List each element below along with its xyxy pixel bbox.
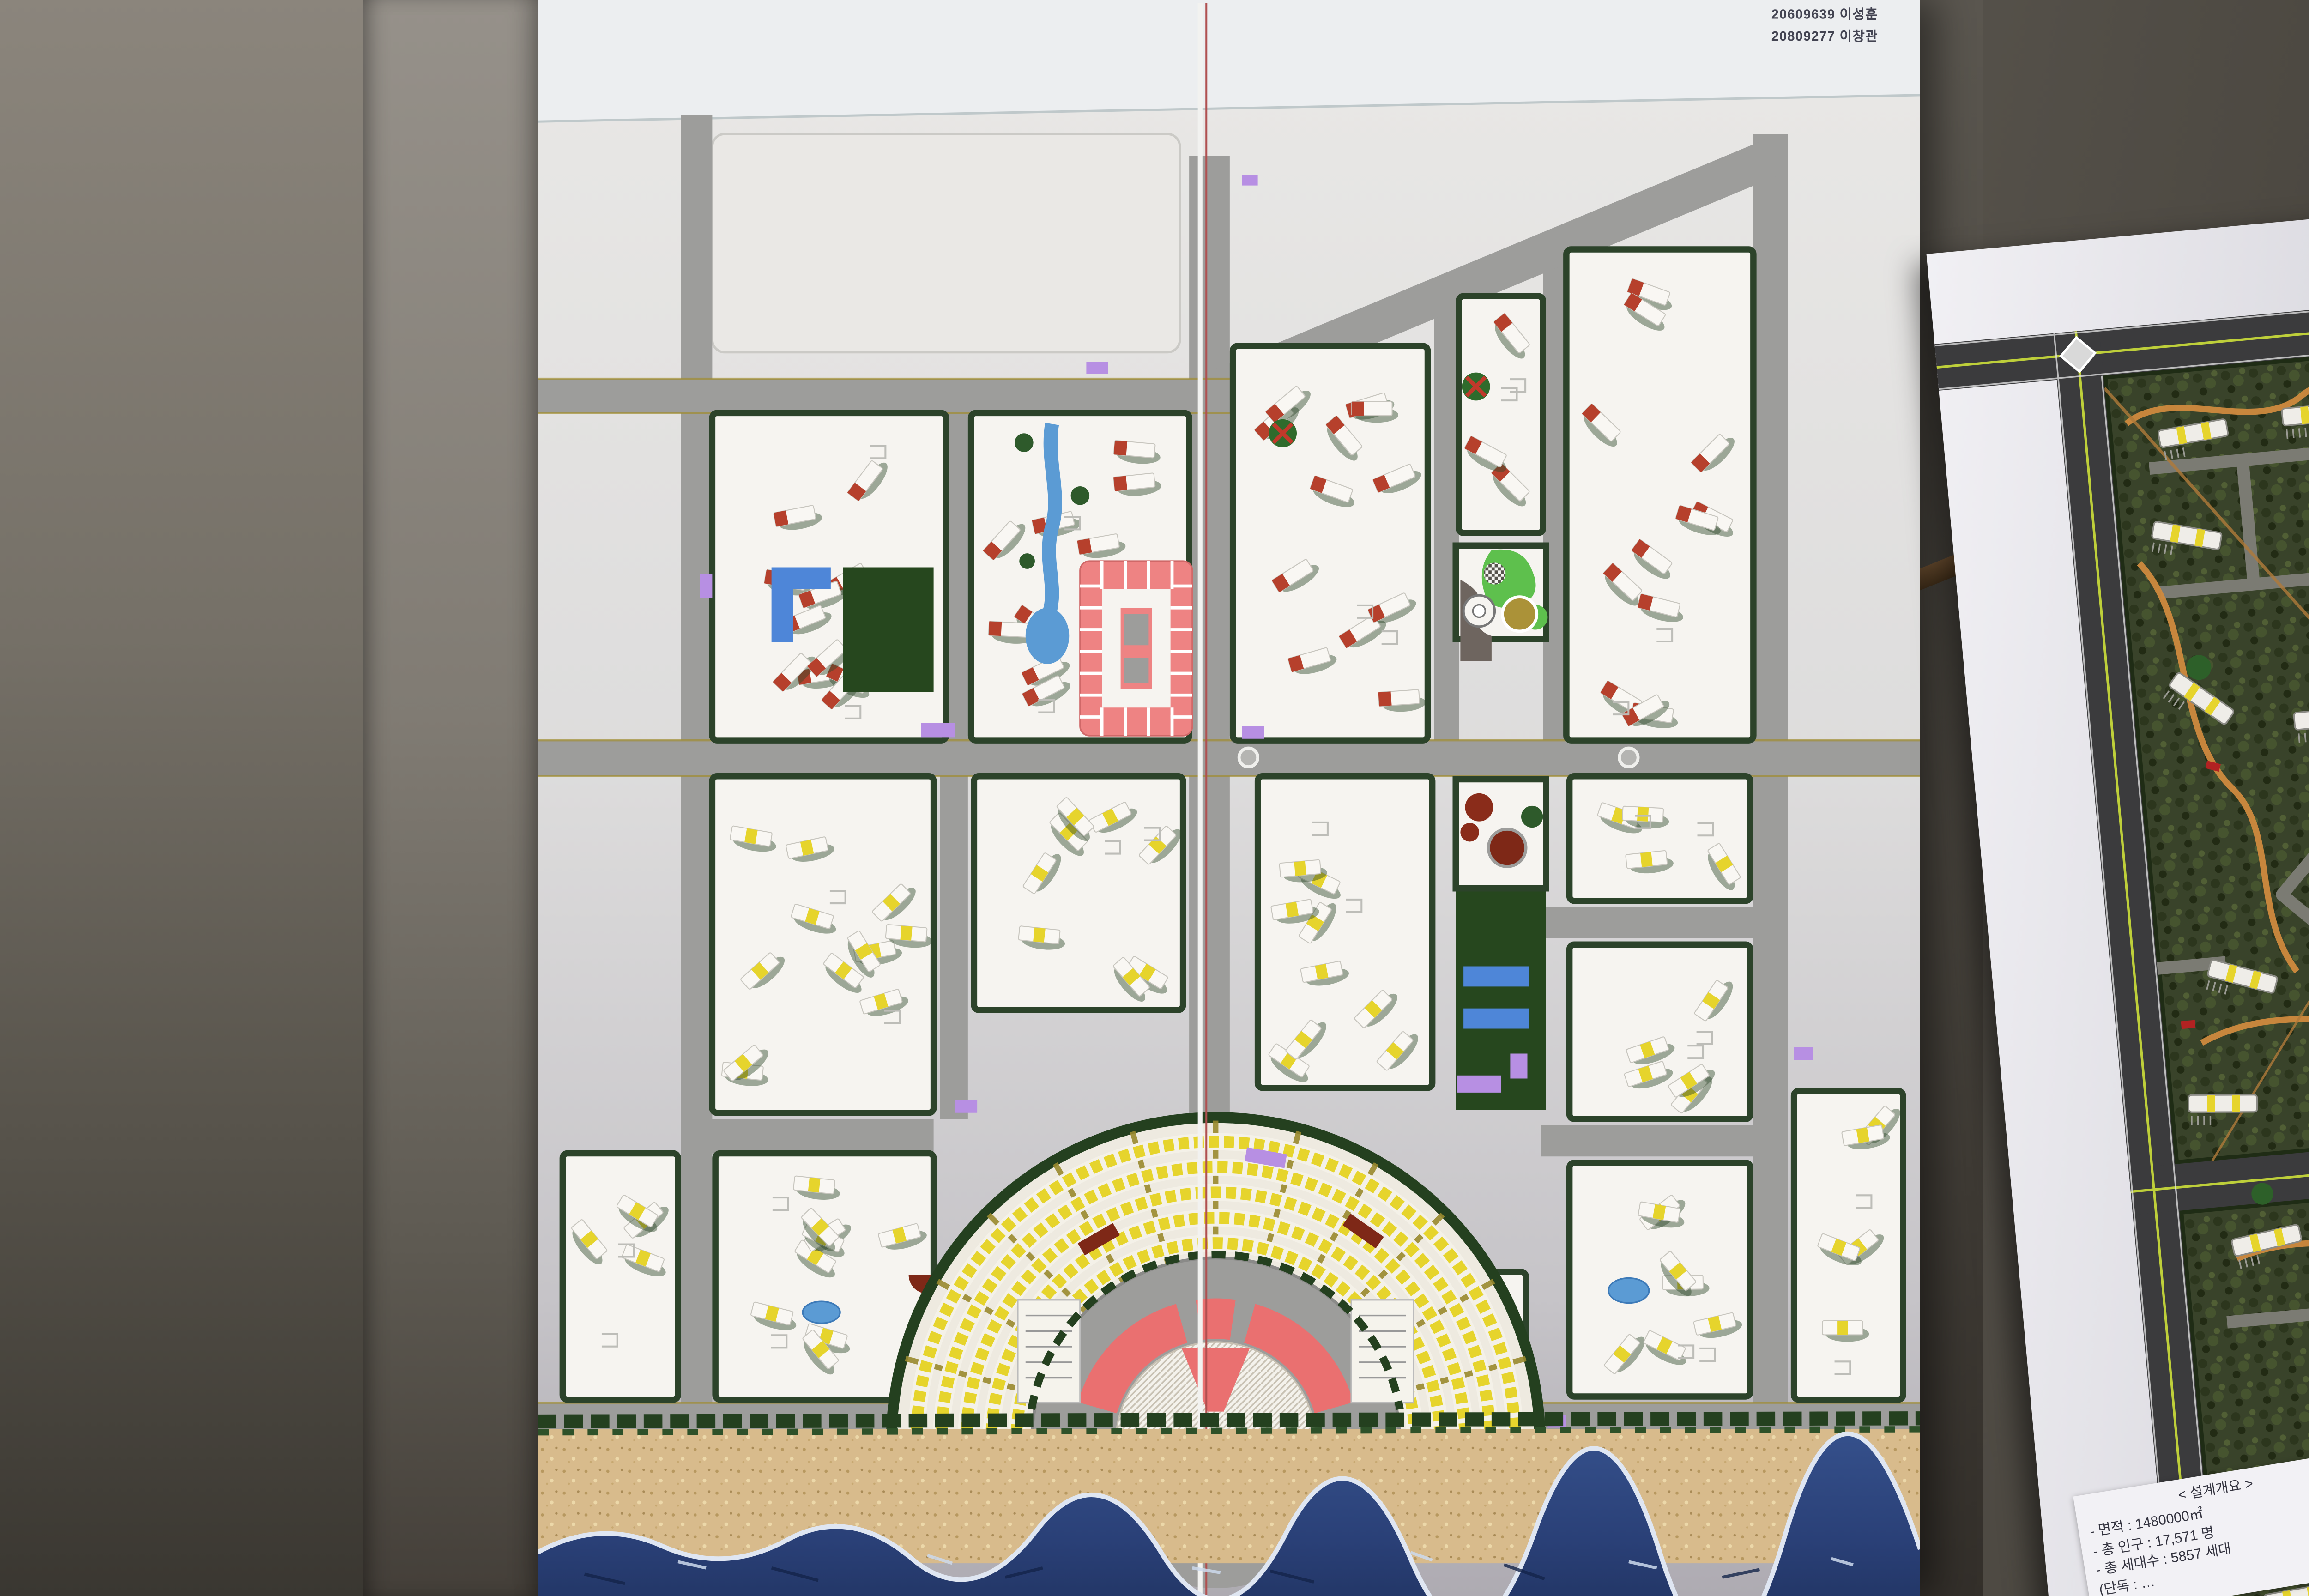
author-line: 20609639 이성훈 [1771, 5, 1878, 26]
wall-corner [363, 0, 538, 1596]
right-model-board: < 설계개요 > - 면적 : 1480000㎡ - 총 인구 : 17,571… [1927, 192, 2309, 1596]
flower-park [1456, 780, 1546, 889]
city-block [562, 1154, 678, 1400]
city-block [1233, 346, 1428, 740]
lawn-blue-building [1456, 892, 1546, 1110]
road-circle [1620, 748, 1638, 767]
commercial-complex-pink [1080, 561, 1192, 736]
photo-stage: 20609639 이성훈 20809277 이창관 [0, 0, 2309, 1596]
pond [803, 1301, 840, 1323]
beach [538, 1418, 1920, 1563]
pond [1608, 1278, 1649, 1303]
city-block [1570, 944, 1751, 1119]
empty-lot [712, 134, 1180, 352]
dark-park [843, 568, 934, 692]
board-gap-shadow [1911, 0, 1983, 1596]
wall-left [0, 0, 363, 1596]
left-city-model [538, 0, 1920, 1596]
author-line: 20809277 이창관 [1771, 26, 1878, 47]
road-circle [1239, 748, 1258, 767]
left-model-board: 20609639 이성훈 20809277 이창관 [538, 0, 1920, 1596]
city-block [1570, 1163, 1751, 1396]
right-city-model [1927, 192, 2309, 1596]
author-credits: 20609639 이성훈 20809277 이창관 [1771, 5, 1878, 47]
